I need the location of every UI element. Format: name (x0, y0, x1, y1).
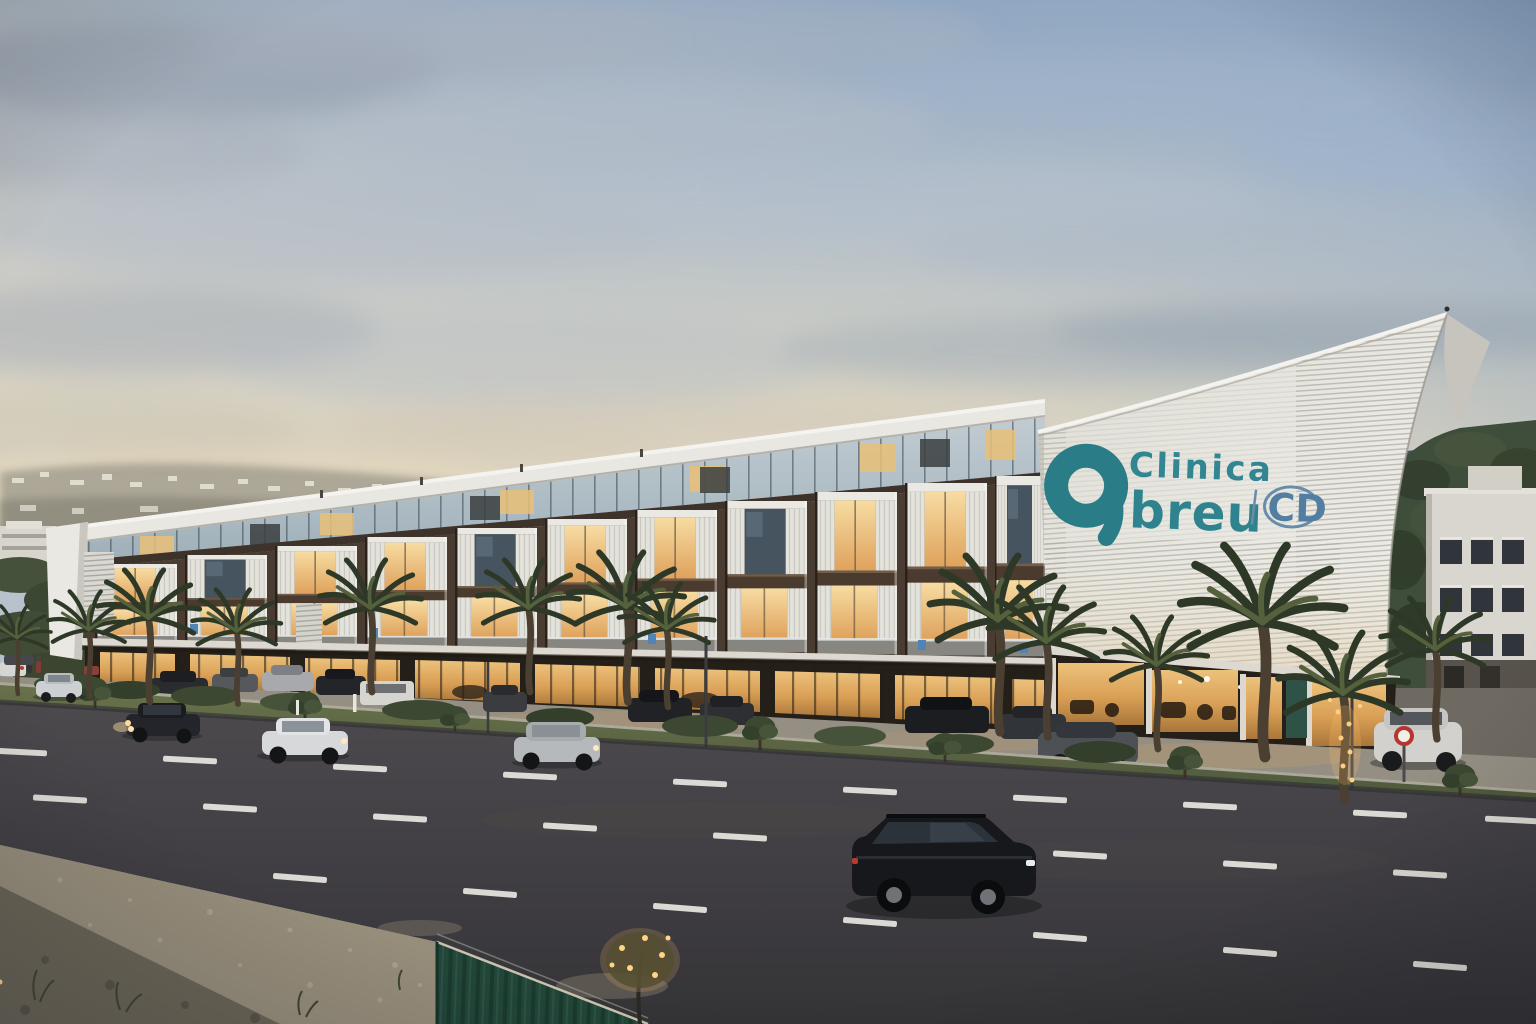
vignette (0, 0, 1536, 1024)
photo-clinica-abreu-street-scene: Clinica breu CD (0, 0, 1536, 1024)
